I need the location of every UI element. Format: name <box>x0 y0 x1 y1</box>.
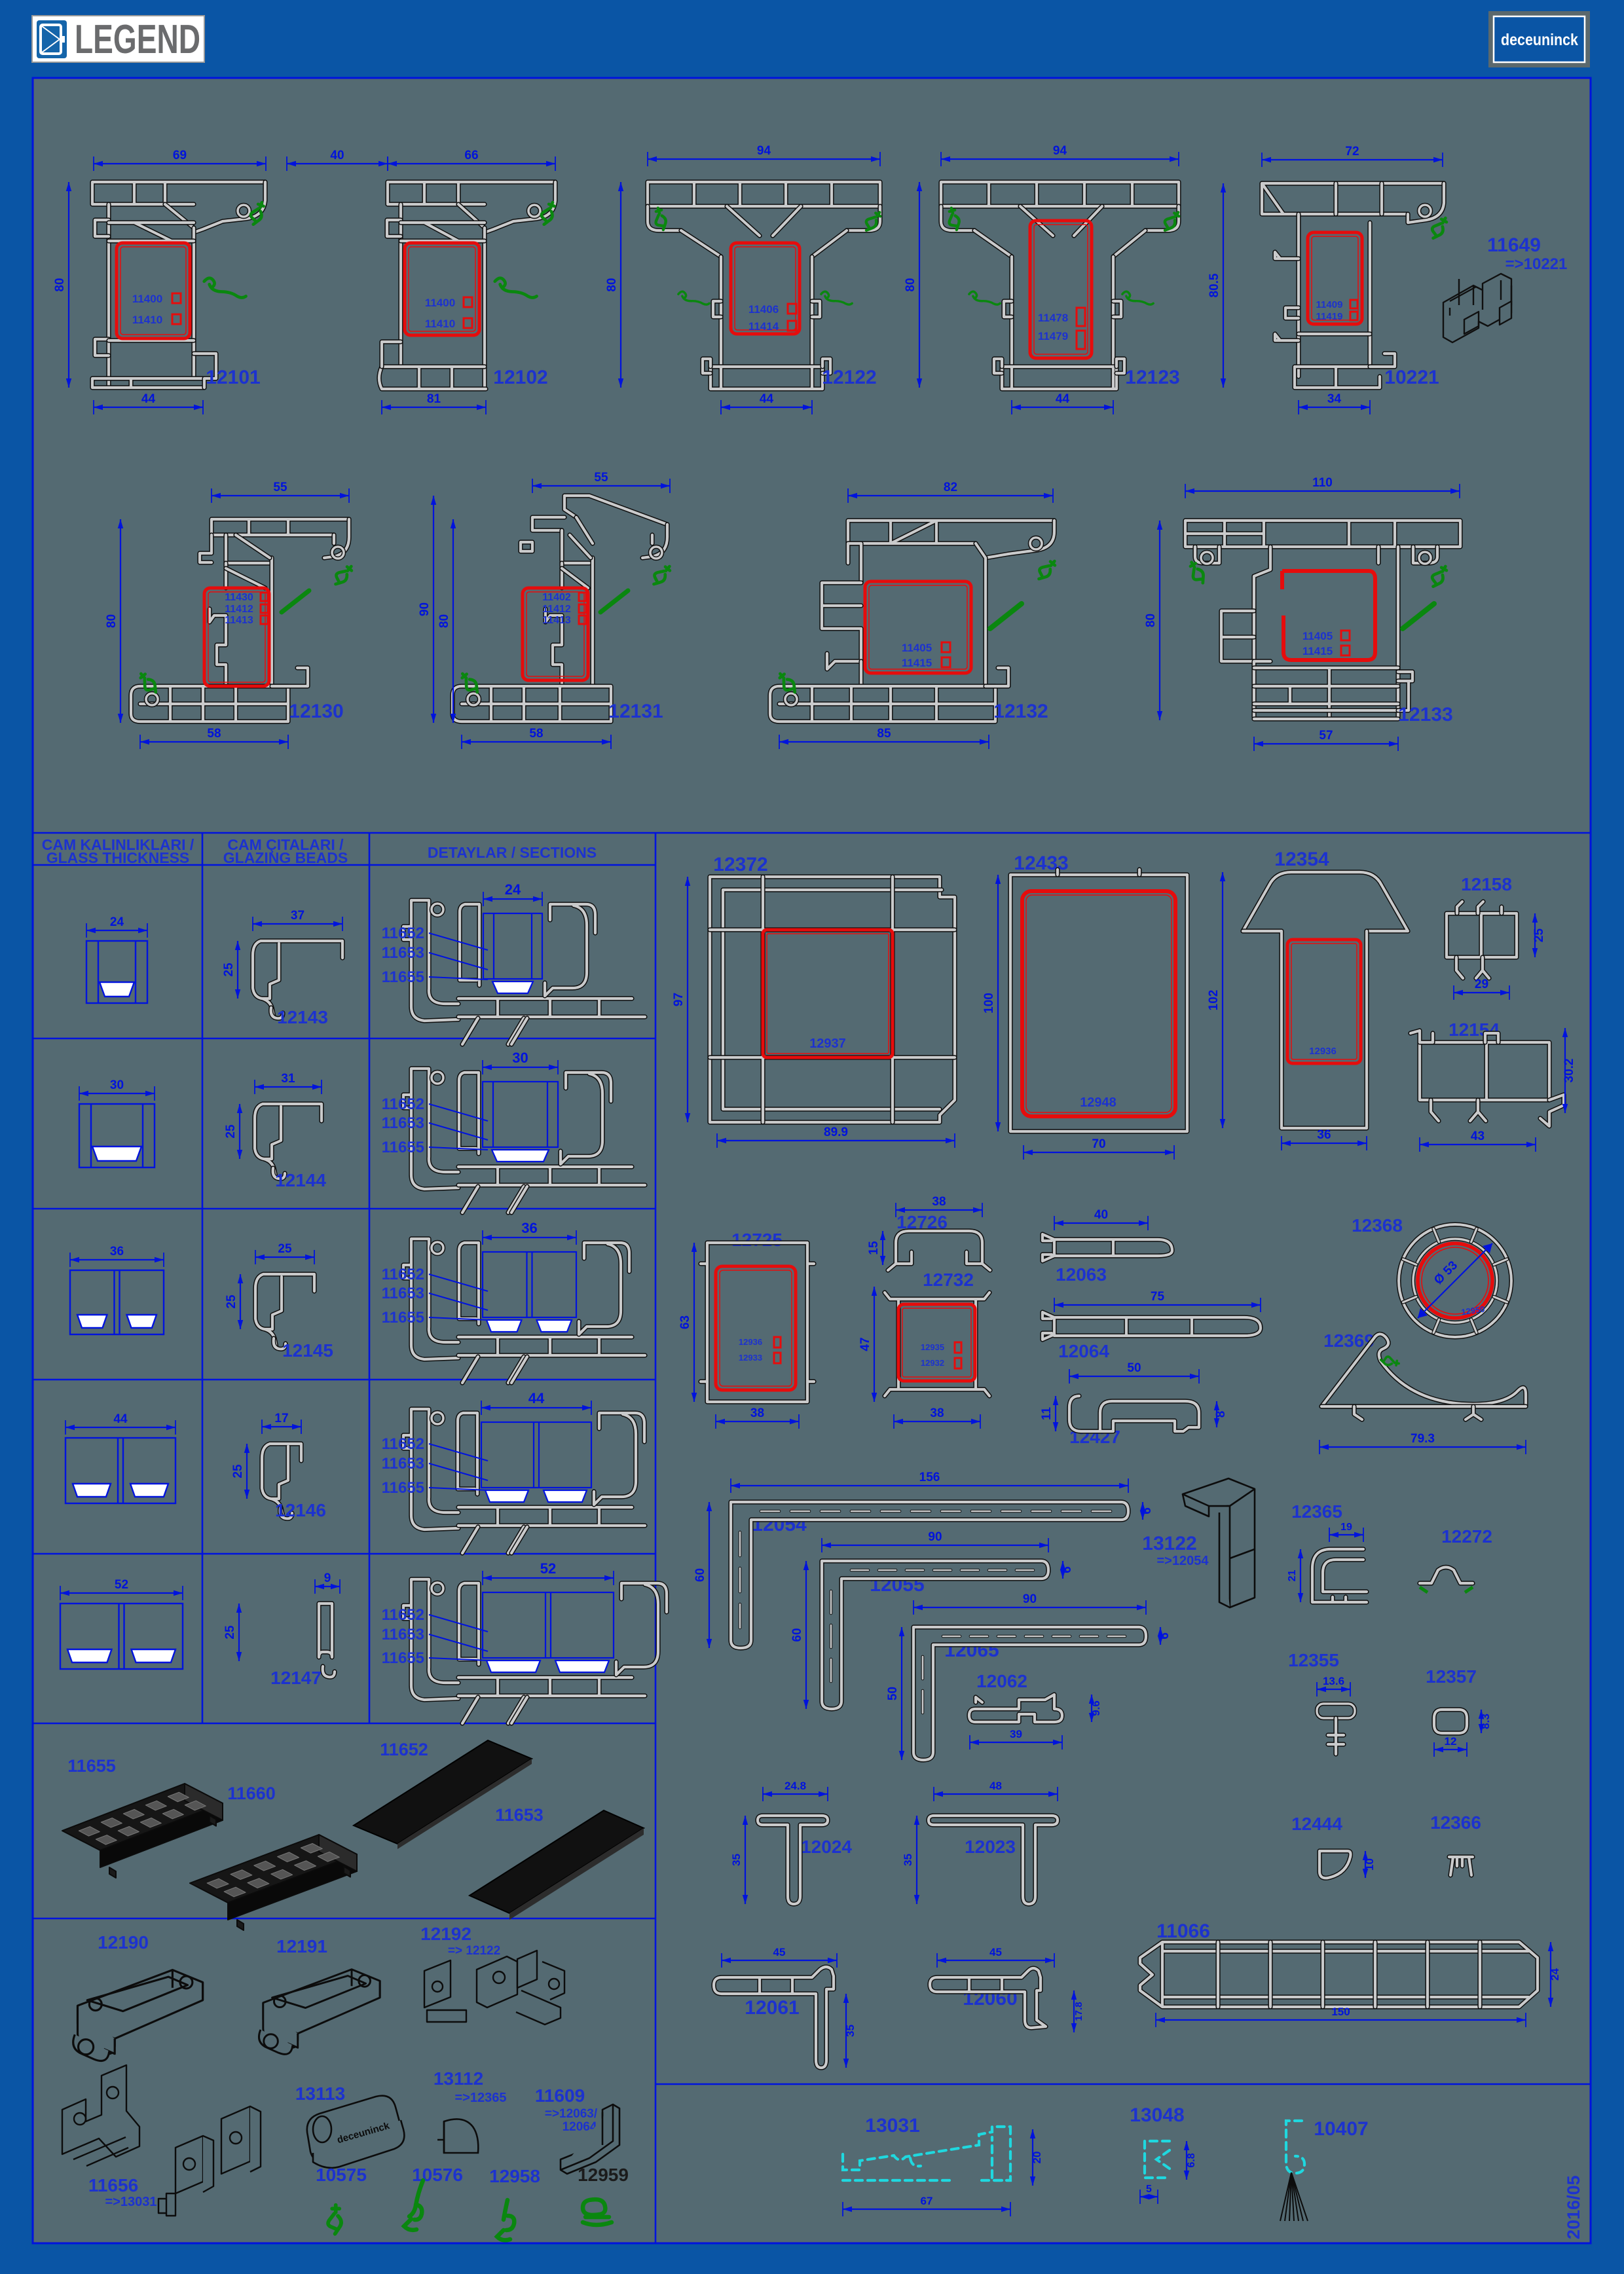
svg-text:deceuninck: deceuninck <box>1501 31 1578 49</box>
svg-text:11413: 11413 <box>225 615 253 626</box>
svg-text:=>10221: =>10221 <box>1505 255 1568 273</box>
svg-text:11655: 11655 <box>67 1756 116 1776</box>
svg-text:60: 60 <box>790 1628 804 1641</box>
svg-text:12958: 12958 <box>489 2166 540 2186</box>
svg-text:12366: 12366 <box>1430 1812 1481 1833</box>
svg-text:80: 80 <box>53 278 67 291</box>
svg-text:58: 58 <box>529 727 543 741</box>
svg-text:12023: 12023 <box>965 1837 1016 1857</box>
svg-text:12143: 12143 <box>277 1007 328 1027</box>
svg-text:45: 45 <box>989 1946 1002 1958</box>
svg-text:40: 40 <box>1094 1208 1108 1222</box>
svg-text:11653: 11653 <box>382 1455 424 1473</box>
svg-text:9: 9 <box>324 1571 331 1585</box>
svg-text:25: 25 <box>231 1464 245 1478</box>
svg-text:11414: 11414 <box>748 320 779 333</box>
svg-text:50: 50 <box>886 1687 900 1700</box>
svg-text:12101: 12101 <box>206 367 260 388</box>
svg-text:12948: 12948 <box>1080 1095 1116 1110</box>
svg-text:11415: 11415 <box>902 657 932 669</box>
svg-text:12158: 12158 <box>1461 874 1512 894</box>
svg-text:25: 25 <box>222 963 236 977</box>
svg-text:12123: 12123 <box>1125 367 1179 388</box>
svg-text:11479: 11479 <box>1038 330 1068 342</box>
svg-text:38: 38 <box>930 1406 944 1420</box>
svg-text:11653: 11653 <box>495 1805 544 1825</box>
svg-text:90: 90 <box>1023 1592 1037 1606</box>
svg-text:12192: 12192 <box>420 1924 471 1944</box>
svg-text:79.3: 79.3 <box>1411 1432 1435 1446</box>
svg-text:12937: 12937 <box>809 1036 846 1051</box>
svg-text:12444: 12444 <box>1291 1814 1342 1834</box>
svg-text:12732: 12732 <box>923 1270 974 1290</box>
svg-text:20: 20 <box>1031 2152 1043 2164</box>
svg-text:13031: 13031 <box>865 2115 919 2136</box>
svg-text:=> 12122: => 12122 <box>448 1944 500 1958</box>
svg-text:11400: 11400 <box>132 293 162 305</box>
svg-text:31: 31 <box>281 1072 295 1086</box>
svg-text:12146: 12146 <box>275 1500 326 1520</box>
svg-text:47: 47 <box>858 1337 872 1351</box>
svg-text:66: 66 <box>464 149 478 162</box>
svg-text:63: 63 <box>678 1315 692 1329</box>
svg-text:=>13031: =>13031 <box>105 2195 157 2209</box>
svg-text:12368: 12368 <box>1352 1215 1403 1236</box>
svg-text:11652: 11652 <box>380 1740 428 1759</box>
svg-text:12062: 12062 <box>976 1671 1027 1691</box>
svg-text:12725: 12725 <box>731 1230 783 1250</box>
svg-text:156: 156 <box>919 1471 940 1484</box>
svg-text:12133: 12133 <box>1398 704 1452 725</box>
svg-text:40: 40 <box>330 149 344 162</box>
svg-text:11412: 11412 <box>542 604 571 615</box>
svg-text:11405: 11405 <box>1302 630 1333 642</box>
svg-text:72: 72 <box>1345 145 1359 158</box>
svg-text:11066: 11066 <box>1156 1920 1210 1942</box>
svg-text:36: 36 <box>1317 1128 1331 1142</box>
svg-text:11402: 11402 <box>542 592 571 603</box>
svg-text:89.9: 89.9 <box>824 1126 848 1139</box>
svg-text:DETAYLAR / SECTIONS: DETAYLAR / SECTIONS <box>428 844 597 861</box>
svg-text:35: 35 <box>730 1854 743 1866</box>
svg-text:11655: 11655 <box>382 1479 424 1497</box>
svg-text:35: 35 <box>902 1854 914 1866</box>
svg-text:94: 94 <box>757 144 771 158</box>
svg-text:11655: 11655 <box>382 1649 424 1667</box>
svg-text:80: 80 <box>605 278 619 291</box>
svg-text:45: 45 <box>773 1946 786 1958</box>
svg-text:36: 36 <box>521 1220 537 1236</box>
svg-text:=>12054: =>12054 <box>1157 1554 1209 1568</box>
svg-text:100: 100 <box>982 993 996 1014</box>
svg-text:6: 6 <box>1060 1566 1074 1573</box>
svg-text:12147: 12147 <box>270 1668 322 1688</box>
svg-text:80.5: 80.5 <box>1208 273 1221 297</box>
svg-text:30: 30 <box>110 1078 124 1092</box>
svg-text:10221: 10221 <box>1384 367 1439 388</box>
svg-text:12064: 12064 <box>1058 1341 1109 1361</box>
svg-text:110: 110 <box>1312 476 1333 490</box>
svg-text:25: 25 <box>225 1294 238 1309</box>
svg-text:12935: 12935 <box>921 1342 944 1352</box>
svg-text:6: 6 <box>1158 1632 1172 1640</box>
svg-text:9.6: 9.6 <box>1090 1700 1102 1716</box>
svg-text:11410: 11410 <box>132 314 162 326</box>
svg-text:81: 81 <box>427 392 441 406</box>
svg-text:150: 150 <box>1331 2006 1350 2018</box>
svg-text:13113: 13113 <box>295 2083 345 2104</box>
svg-text:48: 48 <box>989 1780 1002 1792</box>
svg-text:6.8: 6.8 <box>1186 2153 1197 2167</box>
svg-text:52: 52 <box>540 1560 556 1577</box>
svg-text:12936: 12936 <box>1309 1046 1337 1057</box>
svg-text:13.6: 13.6 <box>1323 1675 1344 1687</box>
svg-text:12054: 12054 <box>752 1514 807 1535</box>
svg-text:70: 70 <box>1092 1137 1105 1151</box>
svg-text:34: 34 <box>1327 392 1342 406</box>
svg-text:12061: 12061 <box>745 1997 799 2019</box>
svg-text:60: 60 <box>693 1568 707 1582</box>
svg-text:11652: 11652 <box>382 1606 424 1624</box>
svg-text:44: 44 <box>141 392 156 406</box>
svg-text:11409: 11409 <box>1316 299 1343 310</box>
svg-text:12102: 12102 <box>493 367 547 388</box>
svg-text:25: 25 <box>224 1124 238 1139</box>
svg-text:17.8: 17.8 <box>1073 2002 1084 2021</box>
svg-text:12357: 12357 <box>1426 1666 1477 1687</box>
svg-text:90: 90 <box>418 602 432 616</box>
svg-text:12: 12 <box>1445 1735 1457 1748</box>
svg-text:94: 94 <box>1053 144 1067 158</box>
svg-text:38: 38 <box>750 1406 764 1420</box>
svg-text:11652: 11652 <box>382 1435 424 1453</box>
svg-text:85: 85 <box>877 727 891 741</box>
svg-text:=>12365: =>12365 <box>455 2091 507 2105</box>
svg-text:24: 24 <box>505 881 521 898</box>
svg-text:50: 50 <box>1127 1361 1141 1375</box>
svg-text:17: 17 <box>274 1412 288 1425</box>
svg-text:12144: 12144 <box>275 1170 326 1190</box>
svg-text:44: 44 <box>528 1390 545 1406</box>
svg-text:12063: 12063 <box>1056 1264 1107 1285</box>
svg-text:35: 35 <box>844 2025 857 2037</box>
svg-text:67: 67 <box>921 2195 933 2207</box>
svg-text:97: 97 <box>672 993 686 1006</box>
svg-text:12936: 12936 <box>739 1337 762 1347</box>
svg-text:12365: 12365 <box>1291 1501 1342 1522</box>
svg-text:90: 90 <box>928 1530 942 1544</box>
svg-text:55: 55 <box>594 471 608 485</box>
svg-text:80: 80 <box>1144 614 1158 627</box>
svg-text:11655: 11655 <box>382 1309 424 1327</box>
svg-text:12024: 12024 <box>801 1837 852 1857</box>
svg-text:10407: 10407 <box>1314 2118 1368 2140</box>
svg-text:11653: 11653 <box>382 1285 424 1302</box>
svg-text:24.8: 24.8 <box>784 1780 806 1792</box>
svg-text:30: 30 <box>512 1050 528 1066</box>
svg-text:12354: 12354 <box>1274 849 1329 870</box>
svg-text:2016/05: 2016/05 <box>1564 2175 1583 2239</box>
svg-text:58: 58 <box>207 727 221 741</box>
svg-text:55: 55 <box>273 481 287 494</box>
svg-text:GLAZING BEADS: GLAZING BEADS <box>223 849 348 866</box>
svg-text:12932: 12932 <box>921 1358 944 1368</box>
svg-text:11400: 11400 <box>425 297 455 309</box>
svg-text:13048: 13048 <box>1130 2104 1184 2126</box>
svg-text:75: 75 <box>1151 1290 1165 1304</box>
svg-text:44: 44 <box>760 392 774 406</box>
svg-text:11419: 11419 <box>1316 311 1343 322</box>
svg-text:12933: 12933 <box>739 1353 762 1363</box>
svg-text:11652: 11652 <box>382 925 424 942</box>
svg-text:43: 43 <box>1471 1129 1485 1143</box>
svg-text:12190: 12190 <box>98 1932 149 1953</box>
svg-text:8: 8 <box>1214 1411 1228 1418</box>
svg-text:11652: 11652 <box>382 1266 424 1283</box>
svg-text:6: 6 <box>1140 1507 1154 1514</box>
svg-text:80: 80 <box>437 614 451 628</box>
svg-text:11653: 11653 <box>382 1114 424 1132</box>
svg-text:24: 24 <box>1549 1968 1561 1981</box>
svg-text:25: 25 <box>223 1625 237 1640</box>
svg-text:13112: 13112 <box>434 2068 483 2089</box>
svg-text:11656: 11656 <box>88 2175 138 2195</box>
svg-text:82: 82 <box>944 481 957 494</box>
svg-text:29: 29 <box>1475 978 1488 991</box>
svg-text:11660: 11660 <box>227 1784 276 1803</box>
svg-text:8.3: 8.3 <box>1479 1714 1492 1729</box>
svg-text:44: 44 <box>113 1412 128 1426</box>
svg-text:24: 24 <box>110 915 124 929</box>
svg-text:11655: 11655 <box>382 1139 424 1156</box>
svg-text:11655: 11655 <box>382 968 424 986</box>
svg-text:12959: 12959 <box>578 2165 629 2185</box>
svg-text:11652: 11652 <box>382 1095 424 1113</box>
svg-text:LEGEND: LEGEND <box>75 17 200 62</box>
svg-text:5: 5 <box>1146 2184 1152 2195</box>
svg-text:12372: 12372 <box>713 854 767 875</box>
svg-text:19: 19 <box>1340 1522 1352 1533</box>
svg-text:11412: 11412 <box>225 604 253 615</box>
svg-text:11413: 11413 <box>542 615 571 626</box>
svg-text:52: 52 <box>115 1578 128 1592</box>
svg-text:11653: 11653 <box>382 944 424 962</box>
svg-text:11430: 11430 <box>225 592 253 603</box>
svg-text:10576: 10576 <box>412 2165 463 2185</box>
svg-text:11: 11 <box>1040 1407 1054 1421</box>
svg-text:30.2: 30.2 <box>1562 1059 1576 1083</box>
svg-text:25: 25 <box>278 1242 292 1256</box>
svg-text:11410: 11410 <box>425 318 455 330</box>
svg-text:11406: 11406 <box>748 303 779 316</box>
svg-text:38: 38 <box>932 1195 946 1209</box>
svg-text:12272: 12272 <box>1441 1526 1492 1547</box>
svg-text:12154: 12154 <box>1449 1019 1500 1040</box>
svg-text:=>12063/: =>12063/ <box>545 2107 598 2121</box>
svg-text:11478: 11478 <box>1038 312 1068 324</box>
svg-text:21: 21 <box>1287 1570 1298 1582</box>
svg-text:36: 36 <box>110 1245 124 1258</box>
svg-text:80: 80 <box>105 614 119 628</box>
svg-text:44: 44 <box>1056 392 1070 406</box>
svg-text:12130: 12130 <box>289 701 343 722</box>
svg-text:80: 80 <box>904 278 917 291</box>
svg-text:12132: 12132 <box>993 701 1048 722</box>
svg-text:69: 69 <box>173 149 187 162</box>
svg-text:10: 10 <box>1363 1858 1376 1871</box>
svg-text:11649: 11649 <box>1487 234 1541 256</box>
svg-text:GLASS THICKNESS: GLASS THICKNESS <box>46 849 190 866</box>
svg-text:11609: 11609 <box>535 2085 585 2106</box>
svg-text:37: 37 <box>291 909 304 923</box>
svg-text:15: 15 <box>867 1241 881 1255</box>
svg-text:39: 39 <box>1010 1728 1022 1740</box>
svg-text:11653: 11653 <box>382 1626 424 1643</box>
svg-text:13122: 13122 <box>1142 1533 1196 1554</box>
svg-text:11405: 11405 <box>902 642 932 654</box>
svg-text:12122: 12122 <box>822 367 876 388</box>
svg-text:12355: 12355 <box>1288 1650 1339 1670</box>
svg-text:12191: 12191 <box>276 1936 327 1956</box>
svg-text:12433: 12433 <box>1014 853 1068 874</box>
svg-text:11415: 11415 <box>1302 645 1333 657</box>
svg-text:102: 102 <box>1207 990 1221 1011</box>
svg-text:12145: 12145 <box>282 1340 333 1361</box>
svg-text:25: 25 <box>1532 928 1546 943</box>
svg-text:57: 57 <box>1319 729 1333 743</box>
svg-text:10575: 10575 <box>316 2165 367 2185</box>
svg-text:12131: 12131 <box>608 701 663 722</box>
